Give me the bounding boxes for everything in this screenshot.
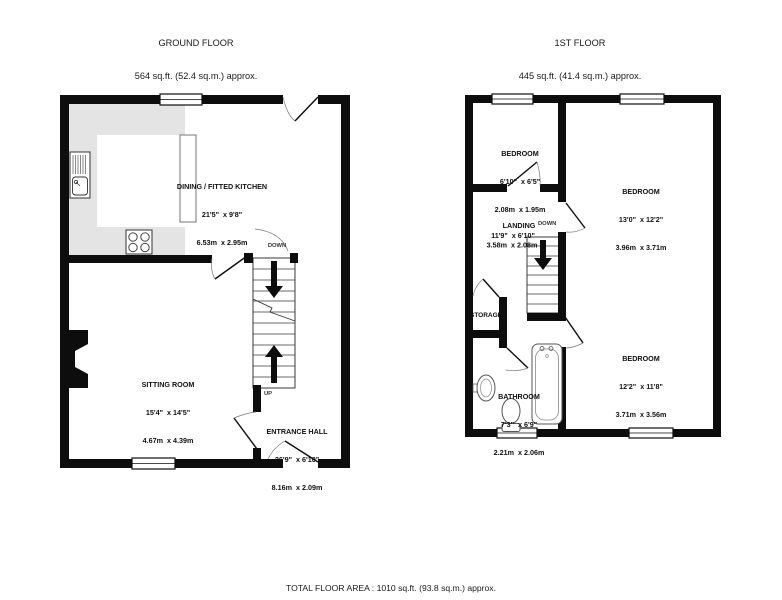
room-label-sitting-room: SITTING ROOM 15'4" x 14'5" 4.67m x 4.39m — [142, 361, 195, 464]
floor-area-text: 564 sq.ft. (52.4 sq.m.) approx. — [135, 71, 258, 82]
door-bathroom — [506, 348, 528, 371]
stairs-up-label: UP — [264, 391, 272, 397]
wall-segment — [253, 385, 261, 412]
chimney-breast-icon — [68, 330, 88, 388]
room-dims-imperial: 15'4" x 14'5" — [142, 408, 195, 417]
room-name: SITTING ROOM — [142, 380, 195, 389]
room-dims-metric: 4.67m x 4.39m — [142, 436, 195, 445]
room-name: BEDROOM — [495, 149, 546, 158]
room-dims-metric: 8.16m x 2.09m — [266, 483, 327, 492]
wall-segment — [558, 232, 566, 321]
room-label-bathroom: BATHROOM 7'3" x 6'9" 2.21m x 2.06m — [494, 373, 545, 476]
room-name: DINING / FITTED KITCHEN — [177, 182, 267, 191]
door-bedroom-front — [566, 203, 585, 232]
room-name: ENTRANCE HALL — [266, 427, 327, 436]
kitchen-sink-icon — [70, 152, 90, 198]
door-back — [283, 97, 318, 121]
wall-segment — [527, 313, 566, 321]
floorplan-drawing: LANDING DOWN 11'9" x 6'10" 3.58m x 2.08m… — [0, 0, 782, 600]
sink-basin-icon — [473, 375, 495, 401]
room-dims-metric: 3.58m x 2.08m — [487, 241, 538, 250]
room-label-dining-kitchen: DINING / FITTED KITCHEN 21'5" x 9'8" 6.5… — [177, 163, 267, 266]
room-dims-imperial: 13'0" x 12'2" — [616, 215, 667, 224]
floor-area-text: 445 sq.ft. (41.4 sq.m.) approx. — [519, 71, 642, 82]
wall-segment — [290, 253, 298, 263]
room-name: BEDROOM — [616, 354, 667, 363]
room-dims-imperial: 21'5" x 9'8" — [177, 210, 267, 219]
wall-segment — [499, 297, 507, 348]
room-label-bedroom-back: BEDROOM 12'2" x 11'8" 3.71m x 3.56m — [616, 335, 667, 438]
room-dims-imperial: 12'2" x 11'8" — [616, 382, 667, 391]
stairs-down-label: DOWN — [268, 243, 286, 249]
room-dims-metric: 2.21m x 2.06m — [494, 448, 545, 457]
room-name: STORAGE — [470, 312, 503, 319]
hob-icon — [126, 230, 152, 254]
room-dims-metric: 6.53m x 2.95m — [177, 238, 267, 247]
room-name: BEDROOM — [616, 187, 667, 196]
room-label-bedroom-front: BEDROOM 13'0" x 12'2" 3.96m x 3.71m — [616, 168, 667, 271]
footer: TOTAL FLOOR AREA : 1010 sq.ft. (93.8 sq.… — [286, 546, 496, 600]
total-floor-area: TOTAL FLOOR AREA : 1010 sq.ft. (93.8 sq.… — [286, 582, 496, 594]
room-label-entrance-hall: ENTRANCE HALL 26'9" x 6'10" 8.16m x 2.09… — [266, 408, 327, 511]
door-storage — [473, 279, 499, 297]
room-dims-metric: 3.71m x 3.56m — [616, 410, 667, 419]
wall-segment — [253, 448, 261, 459]
room-label-bedroom-small: BEDROOM 6'10" x 6'5" 2.08m x 1.95m — [495, 130, 546, 233]
room-dims-metric: 2.08m x 1.95m — [495, 205, 546, 214]
wall-segment — [473, 330, 499, 338]
room-dims-imperial: 26'9" x 6'10" — [266, 455, 327, 464]
room-name: BATHROOM — [494, 392, 545, 401]
wall-segment — [60, 95, 69, 468]
room-dims-imperial: 7'3" x 6'9" — [494, 420, 545, 429]
ground-floor-title: GROUND FLOOR 564 sq.ft. (52.4 sq.m.) app… — [135, 16, 258, 104]
room-dims-imperial: 6'10" x 6'5" — [495, 177, 546, 186]
wall-segment — [341, 95, 350, 468]
floor-title-text: GROUND FLOOR — [135, 38, 258, 49]
wall-segment — [465, 95, 473, 437]
first-floor-title: 1ST FLOOR 445 sq.ft. (41.4 sq.m.) approx… — [519, 16, 642, 104]
ground-stairs-icon — [253, 258, 295, 388]
door-sitting-room — [234, 412, 257, 449]
floor-title-text: 1ST FLOOR — [519, 38, 642, 49]
door-bedroom-back — [563, 314, 583, 348]
wall-segment — [713, 95, 721, 437]
floorplan-page: GROUND FLOOR 564 sq.ft. (52.4 sq.m.) app… — [0, 0, 782, 600]
room-dims-metric: 3.96m x 3.71m — [616, 243, 667, 252]
